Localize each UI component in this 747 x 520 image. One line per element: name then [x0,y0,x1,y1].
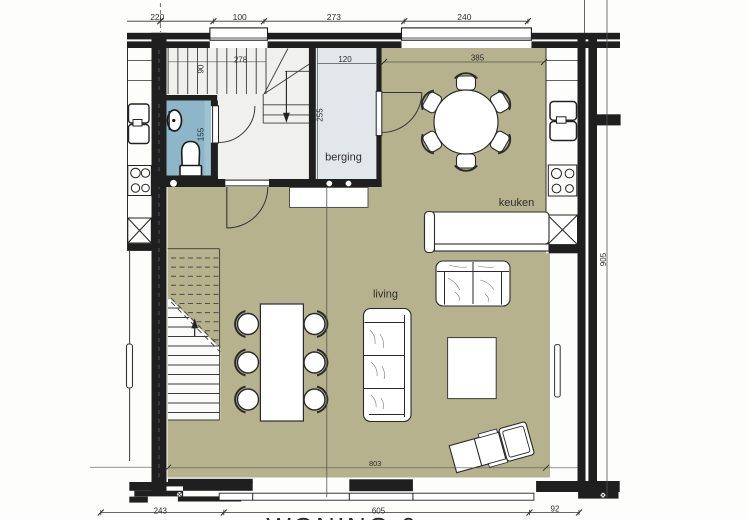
svg-text:90: 90 [197,64,206,73]
svg-text:240: 240 [457,12,471,22]
svg-text:273: 273 [327,12,341,22]
svg-text:120: 120 [338,55,352,64]
svg-text:92: 92 [551,505,560,514]
svg-text:803: 803 [369,459,382,468]
svg-text:385: 385 [471,54,485,63]
svg-text:905: 905 [599,252,608,266]
svg-text:living: living [373,289,398,301]
svg-text:100: 100 [233,12,247,22]
svg-text:255: 255 [316,108,325,122]
svg-text:WONING 6: WONING 6 [266,512,417,520]
svg-text:keuken: keuken [499,197,534,209]
svg-text:278: 278 [234,56,248,65]
svg-text:243: 243 [154,506,168,515]
svg-text:berging: berging [325,152,362,164]
svg-text:220: 220 [150,12,164,22]
svg-text:155: 155 [196,127,205,141]
